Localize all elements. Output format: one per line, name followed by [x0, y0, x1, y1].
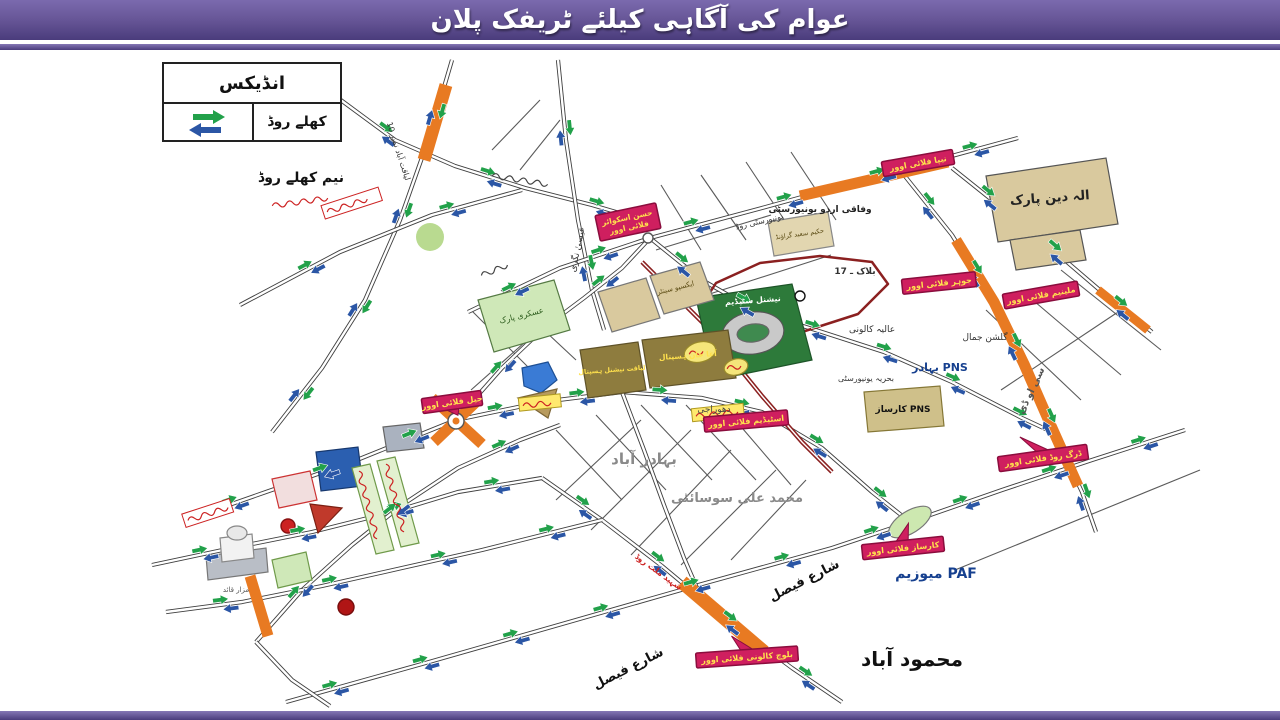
paf-museum-label: PAF میوزیم [895, 566, 977, 582]
pns-bahadur-label: PNS بہادر [911, 361, 968, 374]
mahmudabad-label: محمود آباد [861, 646, 963, 671]
left-flyover-seg [250, 576, 268, 636]
bahria-university-label: بحریہ یونیورسٹی [838, 374, 894, 383]
header-banner: عوام کی آگاہی کیلئے ٹریفک پلان [0, 0, 1280, 40]
pond [522, 362, 557, 393]
shahrah-faisal-2-label: شارع فیصل [591, 645, 666, 693]
millennium-flyover-label: ملینیم فلائی اوور [1002, 281, 1079, 309]
blue-left-arrow-icon [189, 123, 221, 137]
page-title: عوام کی آگاہی کیلئے ٹریفک پلان [431, 5, 850, 35]
handwritten-note [272, 196, 328, 209]
header-divider [0, 44, 1280, 50]
bahadurabad-label: بہادر آباد [611, 450, 677, 469]
legend-row: کھلے روڈ [164, 104, 340, 140]
green-right-arrow-icon [193, 110, 225, 124]
gulshan-jamal-label: گلشن جمال [962, 331, 1008, 343]
handwritten-note [481, 263, 509, 278]
hasan-square-junction [643, 233, 653, 243]
muhammad-ali-society-label: محمد علی سوسائٹی [671, 491, 803, 506]
mazar-dome [227, 526, 247, 540]
pns-karsaz-label: PNS کارساز [875, 405, 931, 415]
traffic-plan-page: عوام کی آگاہی کیلئے ٹریفک پلان نیپا فلائ… [0, 0, 1280, 720]
baloch-colony-flyover-seg [682, 582, 764, 652]
green-roundabout-park [416, 223, 444, 251]
handwritten-note [182, 499, 234, 528]
red-roundabout-2 [338, 599, 354, 615]
legend-open-roads-label: کھلے روڈ [252, 104, 340, 140]
open-road-arrows-icon [177, 107, 239, 137]
green-block-left [272, 552, 312, 588]
mazar-quaid-label: مزار قائد [223, 586, 250, 594]
alia-colony-label: عالیہ کالونی [849, 325, 895, 335]
left-road-down [256, 642, 330, 706]
newtown-roundabout-core [453, 418, 460, 425]
legend-arrows [164, 104, 252, 140]
legend-title: انڈیکس [164, 64, 340, 104]
johar-flyover-label: جوہر فلائی اوور [901, 272, 976, 295]
semi-open-roads-note: نیم کھلے روڈ [246, 170, 356, 186]
block-17-label: بلاک ـ 17 [834, 267, 875, 277]
dhoraji-label: دھوراجی [697, 405, 730, 415]
urdu-university-label: وفاقی اردو یونیورسٹی [768, 205, 871, 215]
footer-strip [0, 711, 1280, 720]
handwritten-note [321, 187, 382, 219]
liaquatabad-10-label: لیاقت آباد نمبر 10 [385, 121, 413, 182]
stadium-gate-dot [795, 291, 805, 301]
legend-box: انڈیکس کھلے روڈ [162, 62, 342, 142]
pink-outlined-block [272, 471, 317, 508]
aladdin-flyover-seg [1098, 290, 1148, 330]
